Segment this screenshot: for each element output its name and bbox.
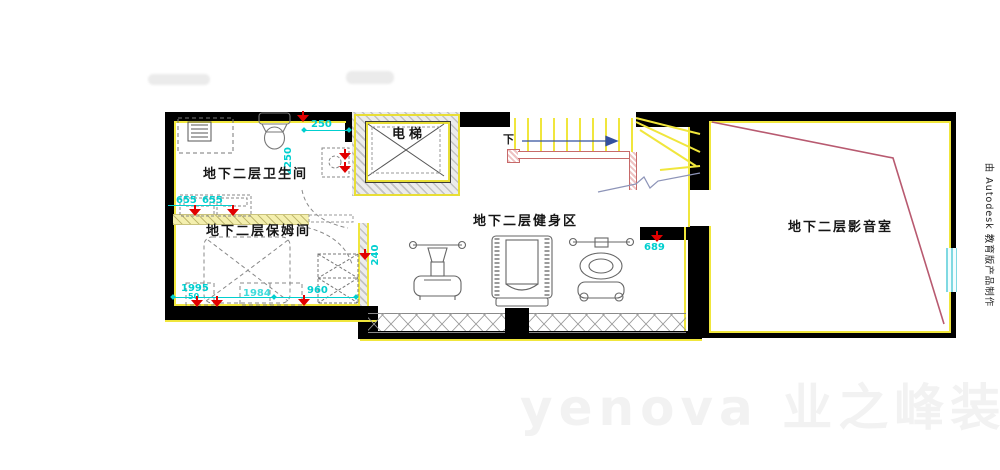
- dimline-250: [303, 130, 351, 131]
- gym-machine-press: [410, 242, 466, 301]
- brand-watermark-en: yenova: [520, 379, 759, 437]
- print-smudge: [346, 71, 394, 84]
- ceiling-lamp-icon: [188, 205, 202, 217]
- lining-nanny-right-a: [358, 223, 360, 306]
- gym-machine-bike: [570, 238, 634, 301]
- wall-pillar: [505, 308, 529, 335]
- wall-bottom-left: [165, 306, 375, 320]
- dimtick: [301, 127, 307, 133]
- wall-nanny-right: [360, 223, 367, 306]
- wall-gym-media-lower: [688, 226, 710, 331]
- stair-down-label: 下: [503, 134, 514, 145]
- lining-media-doorjamb: [688, 127, 690, 227]
- lining-gym-bottom-out: [360, 339, 702, 341]
- autodesk-education-watermark: 由 Autodesk 教育版产品制作: [983, 123, 997, 347]
- door-leaf: [309, 215, 353, 222]
- dim-689: 689: [644, 243, 665, 253]
- brand-watermark-cn: 业之峰装饰: [782, 379, 1000, 437]
- handrail-horizontal: [518, 151, 630, 159]
- media-window: [946, 248, 957, 292]
- print-smudge: [148, 74, 210, 85]
- wall-gym-media-upper: [688, 118, 710, 190]
- dim-240: 240: [371, 241, 381, 269]
- gym-machine-treadmill: [492, 236, 552, 306]
- ceiling-lamp-icon: [226, 205, 240, 217]
- floorplan-canvas: yenova 业之峰装饰: [0, 0, 1000, 470]
- gym-window-strip-left: [368, 313, 505, 333]
- room-label-media: 地下二层影音室: [788, 221, 893, 234]
- ceiling-lamp-icon: [296, 111, 310, 123]
- gym-window-strip-right: [529, 313, 686, 333]
- room-label-gym: 地下二层健身区: [473, 215, 578, 228]
- stair-break-line: [598, 173, 700, 192]
- ceiling-lamp-icon: [338, 149, 352, 161]
- shower-fixture: [178, 118, 233, 153]
- dim-1984: 1984: [243, 289, 271, 299]
- room-label-bathroom: 地下二层卫生间: [203, 168, 308, 181]
- room-label-nanny: 地下二层保姆间: [206, 225, 311, 238]
- stair-treads: [514, 118, 638, 152]
- ceiling-lamp-icon: [210, 296, 224, 308]
- ceiling-lamp-icon: [297, 295, 311, 307]
- media-door-opening: [698, 190, 711, 226]
- lining-nanny-right-b: [367, 223, 369, 306]
- ceiling-lamp-icon: [190, 296, 204, 308]
- wall-top-elevator-stairs: [452, 112, 510, 127]
- brand-watermark: yenova 业之峰装饰: [520, 368, 980, 430]
- ceiling-lamp-icon: [650, 231, 664, 243]
- dim-250: 250: [311, 120, 332, 130]
- ceiling-lamp-icon: [358, 249, 372, 261]
- handrail-vertical: [629, 152, 637, 190]
- lining-bottom-left-out: [165, 320, 377, 322]
- ceiling-lamp-icon: [338, 162, 352, 174]
- dimtick: [271, 294, 277, 300]
- wall-media-top: [700, 112, 956, 121]
- room-label-elevator: 电梯: [392, 128, 426, 141]
